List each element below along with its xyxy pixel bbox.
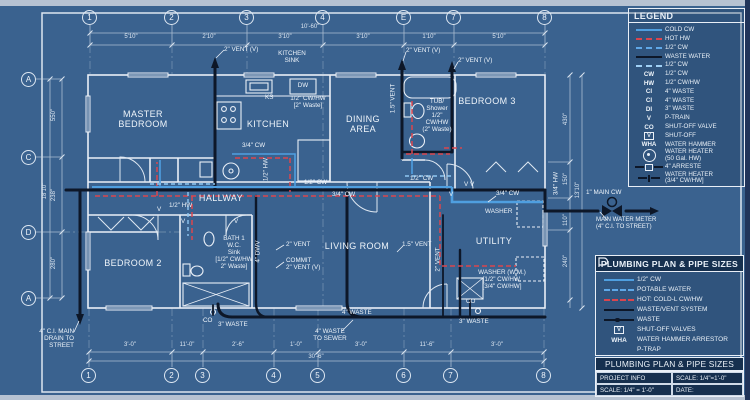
room-label-master-bedroom: MASTER BEDROOM [103,109,183,129]
waste-vent-line-symbol [601,309,637,311]
date-cell: DATE: [672,384,743,396]
dim-label: 110" [563,200,569,240]
grid-bubble-top: 3 [239,10,254,25]
legend-item: WASTE [601,315,740,325]
water-meter-label: MAIN WATER METER (4" C.I. TO STREET) [596,217,656,230]
dim-label: 11'-6" [407,342,447,348]
pipe-sizes-body: 1/2" CW POTABLE WATER HOT: COLD-L CW/HW … [596,272,743,355]
legend-body: COLD CW HOT HW 1/2" CW WASTE WATER 1/2" … [629,23,744,185]
dishwasher-label: DW [290,82,316,89]
dim-label: 3'-0" [341,342,381,348]
sheet-title-bar: PLUMBING PLAN & PIPE SIZES [595,357,744,371]
legend-item: DI3" WASTE [633,105,741,114]
cold-water-pipes [92,154,543,202]
waste-sewer-label: 4" WASTE TO SEWER [308,328,352,342]
scale-cell: SCALE: 1/4" = 1'-0" [596,384,672,396]
arrester-icon [633,164,665,171]
pipe-size-label: 3/4" CW [332,191,355,198]
scale-cell: SCALE: 1/4"=1'-0" [672,372,743,384]
cw-dashed-line-symbol [633,47,665,49]
vent-label: 2" VENT (V) [224,46,258,53]
dim-label: 3'-0" [110,342,150,348]
dim-label: 150" [563,159,569,199]
project-info-cell: PROJECT INFO [596,372,672,384]
right-edge-strip [745,0,750,400]
vent-label: 2" VENT (V) [406,47,440,54]
legend-item: CW1/2" CW [633,70,741,79]
dim-label: 1'-0" [276,342,316,348]
legend-item: VSHUT-OFF VALVES [601,325,740,335]
dim-label: 3'10" [343,34,383,40]
legend-item: WASTE/VENT SYSTEM [601,305,740,315]
legend-item: POTABLE WATER [601,285,740,295]
legend-item: WATER HEATER (50 Gal. HW) [633,149,741,163]
legend-title: LEGEND [629,9,744,23]
legend-item: WATER HEATER (3/4" CW/HW] [633,171,741,185]
grid-bubble-left: A [21,72,36,87]
shutoff-valve-icon: V [644,132,654,140]
vent-label: 2" VENT [434,240,441,280]
valve-mark: V [234,218,238,225]
waste-dot-line-symbol [601,319,637,321]
valve-mark: V V [464,181,474,188]
water-meter-icon [608,198,617,207]
pipe-sizes-panel: PLUMBING PLAN & PIPE SIZES 1/2" CW POTAB… [595,255,744,356]
legend-item: 1/2" CW [601,275,740,285]
blueprint-sheet: 1 2 3 4 E 7 8 1 2 3 4 5 6 7 8 A C D A 5'… [0,0,750,400]
dim-label: 3'10" [265,34,305,40]
grid-bubble-bottom: 5 [310,368,325,383]
grid-bubble-top: E [396,10,411,25]
dim-label: 5'10" [479,34,519,40]
vent-label: 1.5" VENT [389,79,396,119]
dim-overall-left: 18'10" [42,171,48,211]
legend-item: HW1/2" CW/HW [633,79,741,88]
pipe-sizes-title: PLUMBING PLAN & PIPE SIZES [596,256,743,272]
vent-label: 2" VENT [286,241,310,248]
vent-label: 1.5" VENT [402,241,432,248]
kitchen-supply-label: 1/2" CW/HW [2" Waste] [280,95,336,109]
dim-overall-bottom: 30'-6" [296,354,336,360]
grid-bubble-bottom: 6 [396,368,411,383]
dim-label: 5'10" [111,34,151,40]
legend-item: 1/2" CW [633,44,741,53]
legend-item: 1/2" CW [633,61,741,70]
main-drain-label: 4" C.I. MAIN DRAIN TO STREET [22,328,74,349]
pipe-size-label: 3/4" CW [242,142,265,149]
waste-label: 3" WASTE [218,321,248,328]
cleanout-label: CO [203,317,212,324]
grid-bubble-bottom: 3 [195,368,210,383]
cw-light-dashed-line-symbol [633,65,665,67]
legend-item: COSHUT-OFF VALVE [633,123,741,132]
legend-item: VP-TRAIN [633,114,741,123]
legend-panel: LEGEND COLD CW HOT HW 1/2" CW WASTE WATE… [628,8,745,187]
dim-label: 2'-6" [218,342,258,348]
cleanout-label: CO [466,298,475,305]
grid-bubble-top: 4 [315,10,330,25]
water-heater-icon [643,149,656,162]
washer-wm-label: WASHER (W.M.) [1/2" CW/HW, [3/4" CW/HW] [470,269,534,290]
grid-bubble-bottom: 1 [81,368,96,383]
potable-water-line-symbol [601,289,637,291]
grid-bubble-top: 7 [446,10,461,25]
legend-item: WHAWATER HAMMER ARRESTOR [601,335,740,345]
dim-overall-right: 13'10" [575,170,581,210]
room-label-hallway: HALLWAY [181,193,261,203]
room-label-kitchen: KITCHEN [228,119,308,129]
legend-item: CI4" WASTE [633,96,741,105]
dim-label: 3'-0" [477,342,517,348]
dim-label: 430" [563,99,569,139]
washer-label: WASHER [485,208,512,215]
bath1-label: BATH 1 W.C. Sink [1/2" CW/HW 2" Waste] [208,235,260,270]
waste-line-symbol [633,56,665,58]
grid-bubble-left: C [21,150,36,165]
waste-label: 3" WASTE [459,318,489,325]
hot-water-line-symbol [633,38,665,40]
legend-item: P-TRAP [601,345,740,355]
room-label-bedroom-2: BEDROOM 2 [93,258,173,268]
hot-water-line-symbol [601,299,637,301]
grid-bubble-top: 2 [164,10,179,25]
kitchen-sink-label: KITCHEN SINK [272,50,312,64]
legend-item: HOT HW [633,35,741,44]
cold-water-line-symbol [601,279,637,281]
dim-label: 550" [51,95,57,135]
room-label-living-room: LIVING ROOM [317,241,397,251]
dim-label: 11'-0" [167,342,207,348]
main-cw-label: 1" MAIN CW [586,189,621,196]
dim-label: 2'10" [189,34,229,40]
grid-bubble-top: 1 [82,10,97,25]
top-edge-strip [0,0,750,6]
grid-bubble-left: D [21,225,36,240]
grid-bubble-top: 8 [537,10,552,25]
dim-label: 280" [51,243,57,283]
shutoff-valve-icon: V [614,326,624,334]
legend-item: WASTE WATER [633,52,741,61]
pipe-size-label: 1/2" HW [169,202,192,209]
grid-bubble-left: A [21,291,36,306]
waste-label: 4" WASTE [342,309,372,316]
legend-item: COLD CW [633,26,741,35]
tub-shower-label: TUB/ Shower 1/2" CW/HW (2" Waste) [416,98,458,133]
valve-mark: V [449,191,453,198]
ks-label: KS [265,94,273,101]
pipe-size-label: 3/4" HW [552,164,559,204]
pipe-size-label: 1/2" HW [262,150,269,190]
water-heater-line-icon [633,175,665,182]
room-label-bedroom-3: BEDROOM 3 [447,96,527,106]
dim-label: 1'10" [409,34,449,40]
valve-mark: V [157,206,161,213]
grid-bubble-bottom: 7 [443,368,458,383]
grid-bubble-bottom: 4 [266,368,281,383]
room-label-utility: UTILITY [454,236,534,246]
pipe-size-label: 1/2" CW [304,179,327,186]
dim-overall-top: 10'-60" [290,24,330,30]
legend-item: VSHUT-OFF [633,132,741,141]
grid-bubble-bottom: 8 [536,368,551,383]
cold-water-branch-pipes [150,176,452,236]
legend-item: HOT: COLD-L CW/HW [601,295,740,305]
grid-bubble-bottom: 2 [164,368,179,383]
title-block-table: PROJECT INFO SCALE: 1/4"=1'-0" SCALE: 1/… [595,371,744,397]
cold-water-line-symbol [633,29,665,31]
dim-label: 240" [563,241,569,281]
pipe-size-label: 1/2" CW [410,175,433,182]
pipe-size-label: 4" DWV [254,232,261,272]
valve-mark: V [181,218,185,225]
dim-label: 238" [51,175,57,215]
vent-label: COMMIT 2" VENT (V) [286,257,320,271]
legend-item: CI4" WASTE [633,88,741,97]
vent-label: 2" VENT (V) [458,57,492,64]
pipe-size-label: 3/4" CW [496,190,519,197]
